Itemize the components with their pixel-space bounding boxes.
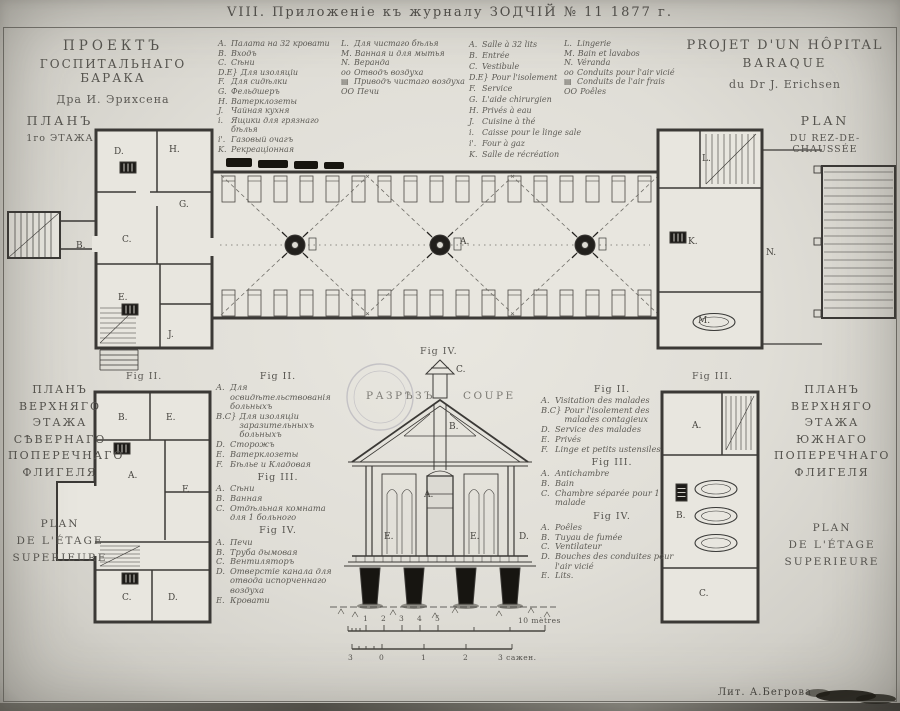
legend-row: i'. Four à gaz	[469, 138, 587, 149]
legend-text: Pour l'isolement	[492, 72, 558, 83]
legend-row: G. Фельдшеръ	[218, 87, 342, 97]
legend-key: OO	[564, 87, 577, 97]
legend-row: E. Privés	[541, 435, 683, 444]
legend-row: i. Ящики для грязнаго бѣлья	[218, 116, 342, 135]
legend-key: ▤	[341, 77, 351, 87]
legend-row: K. Salle de récréation	[469, 149, 587, 160]
side-subtitle-line: DE L'ÉTAGE	[8, 533, 112, 550]
legend-row: A. Для освидѣтельствованія больныхъ	[216, 383, 340, 411]
legend-row: D.E} Для изоляціи	[218, 68, 342, 78]
legend-row: J. Чайная кухня	[218, 106, 342, 116]
legend-key: B.C}	[216, 412, 236, 440]
side-title-line: ПЛАНЪ	[774, 382, 890, 399]
legend-text: Conduits de l'air frais	[577, 77, 665, 87]
legend-text: Сторожъ	[230, 440, 274, 449]
legend-key: F.	[541, 445, 552, 454]
legend-row: E. Lits.	[541, 571, 683, 580]
legend-key: i.	[218, 116, 228, 135]
legend-row: A. Poêles	[541, 523, 683, 532]
legend-text: Бѣлье и Кладовая	[230, 460, 311, 469]
legend-key: D.	[216, 567, 227, 595]
side-title-line: ФЛИГЕЛЯ	[8, 465, 112, 482]
legend-row: OO Poêles	[564, 87, 692, 97]
plan-label-fr-line1: PLAN	[760, 113, 890, 128]
legend-text: Caisse pour le linge sale	[482, 127, 581, 138]
side-title-left: ПЛАНЪВЕРХНЯГОЭТАЖАСѢВЕРНАГОПОПЕРЕЧНАГОФЛ…	[8, 382, 112, 481]
legend-key: H.	[218, 97, 228, 107]
fig2-legend-title: Fig II.	[216, 372, 340, 381]
legend-row: M. Bain et lavabos	[564, 49, 692, 59]
legend-text: Vestibule	[482, 61, 519, 72]
legend-key: oo	[341, 68, 351, 78]
plan-label-ru: ПЛАНЪ 1го ЭТАЖА	[14, 113, 106, 144]
caption-fig4: Fig IV.	[420, 346, 458, 357]
legend-row: B. Входъ	[218, 49, 342, 59]
legend-text: Cuisine à thé	[482, 116, 535, 127]
legend-text: Salle de récréation	[482, 149, 559, 160]
legend-text: Entrée	[482, 50, 510, 61]
plan-label-fr-line2: DU REZ-DE-CHAUSSÉE	[760, 133, 890, 155]
side-title-line: ЭТАЖА	[8, 415, 112, 432]
side-subtitle-line: DE L'ÉTAGE	[774, 537, 890, 554]
side-title-line: ПОПЕРЕЧНАГО	[774, 448, 890, 465]
legend-text: Ящики для грязнаго бѣлья	[231, 116, 342, 135]
legend-text: Палата на 32 кровати	[231, 39, 330, 49]
legend-key: E.	[216, 450, 227, 459]
legend-key: G.	[218, 87, 228, 97]
lithograph-plate: VIII. Приложеніе къ журналу ЗОДЧІЙ № 11 …	[0, 0, 900, 711]
fig-legend-ru: Fig II. A. Для освидѣтельствованія больн…	[216, 372, 340, 605]
legend-text: Приводъ чистаго воздуха	[354, 77, 465, 87]
legend-key: A.	[216, 538, 227, 547]
legend-key: C.	[216, 504, 227, 523]
legend-row: E. Ватерклозеты	[216, 450, 340, 459]
legend-key: G.	[469, 94, 479, 105]
legend-row: i. Caisse pour le linge sale	[469, 127, 587, 138]
fig3-legend-title: Fig III.	[216, 473, 340, 482]
legend-text: Кровати	[230, 596, 270, 605]
legend-key: B.	[218, 49, 228, 59]
legend-text: Ванная	[230, 494, 262, 503]
side-title-line: ПЛАНЪ	[8, 382, 112, 399]
legend-text: Four à gaz	[482, 138, 525, 149]
lithographer-credit: Лит. А.Бегрова	[718, 687, 812, 698]
legend-key: A.	[218, 39, 228, 49]
section-label-ru: РАЗРѢЗЪ	[366, 390, 435, 402]
legend-key: C.	[541, 489, 552, 508]
fig3-legend-items: A. Сѣни B. Ванная C. Отдѣльная комната д…	[216, 484, 340, 522]
legend-key: OO	[341, 87, 354, 97]
legend-text: Печи	[230, 538, 253, 547]
legend-text: Для сидѣлки	[231, 77, 287, 87]
fig4-legend-items-fr: A. Poêles B. Tuyau de fumée C. Ventilate…	[541, 523, 683, 581]
legend-text: Входъ	[231, 49, 257, 59]
title-block-ru: ПРОЕКТЪ ГОСПИТАЛЬНАГО БАРАКА Дра И. Эрих…	[12, 38, 214, 106]
side-title-right: ПЛАНЪВЕРХНЯГОЭТАЖАЮЖНАГОПОПЕРЕЧНАГОФЛИГЕ…	[774, 382, 890, 481]
side-title-line: ЭТАЖА	[774, 415, 890, 432]
legend-row: J. Cuisine à thé	[469, 116, 587, 127]
legend-text: Bouches des conduites pour l'air vicié	[555, 552, 683, 571]
legend-text: Salle à 32 lits	[482, 39, 537, 50]
legend-text: Conduits pour l'air vicié	[577, 68, 675, 78]
legend-key: D.	[541, 552, 552, 571]
side-title-line: ФЛИГЕЛЯ	[774, 465, 890, 482]
plan-label-ru-line1: ПЛАНЪ	[14, 113, 106, 128]
legend-fr-col2: L. Lingerie M. Bain et lavabos N. Vérand…	[564, 39, 692, 97]
legend-key: J.	[469, 116, 479, 127]
legend-ru-col1: A. Палата на 32 кровати B. Входъ C. Сѣни…	[218, 39, 342, 154]
legend-text: Linge et petits ustensiles	[555, 445, 661, 454]
legend-text: L'aide chirurgien	[482, 94, 552, 105]
legend-text: Отверстіе канала для отвода испорченнаго…	[230, 567, 340, 595]
legend-key: K.	[218, 145, 228, 155]
legend-key: B.	[469, 50, 479, 61]
fig3-legend-title-fr: Fig III.	[541, 458, 683, 467]
side-title-line: ЮЖНАГО	[774, 432, 890, 449]
legend-row: ▤ Conduits de l'air frais	[564, 77, 692, 87]
legend-text: Pour l'isolement des malades contagieux	[564, 406, 683, 425]
fig3-legend-items-fr: A. Antichambre B. Bain C. Chambre séparé…	[541, 469, 683, 507]
legend-key: i'.	[218, 135, 228, 145]
legend-row: N. Веранда	[341, 58, 467, 68]
legend-row: H. Ватерклозеты	[218, 97, 342, 107]
legend-row: D. Сторожъ	[216, 440, 340, 449]
legend-row: ▤ Приводъ чистаго воздуха	[341, 77, 467, 87]
fig2-legend-items: A. Для освидѣтельствованія больныхъ B.C}…	[216, 383, 340, 469]
legend-key: A.	[216, 383, 227, 411]
legend-key: F.	[218, 77, 228, 87]
legend-key: D.E}	[469, 72, 489, 83]
legend-key: N.	[564, 58, 574, 68]
legend-key: E.	[216, 596, 227, 605]
legend-row: C. Chambre séparée pour 1 malade	[541, 489, 683, 508]
legend-key: A.	[541, 523, 552, 532]
legend-key: C.	[218, 58, 228, 68]
plan-label-ru-line2: 1го ЭТАЖА	[14, 133, 106, 144]
side-subtitle-line: PLAN	[8, 516, 112, 533]
legend-text: Отдѣльная комната для 1 больного	[230, 504, 340, 523]
legend-text: Рекреаціонная	[231, 145, 294, 155]
legend-text: Фельдшеръ	[231, 87, 280, 97]
legend-row: D. Bouches des conduites pour l'air vici…	[541, 552, 683, 571]
legend-key: J.	[218, 106, 228, 116]
scan-edge-shadow	[0, 703, 900, 711]
legend-text: Privés	[555, 435, 581, 444]
fig-legend-fr: Fig II. A. Visitation des malades B.C} P…	[541, 385, 683, 581]
legend-key: L.	[341, 39, 351, 49]
legend-key: K.	[469, 149, 479, 160]
legend-text: Для освидѣтельствованія больныхъ	[230, 383, 340, 411]
legend-key: D.E}	[218, 68, 238, 78]
legend-text: Для изоляціи заразительныхъ больныхъ	[239, 412, 340, 440]
title-ru-author: Дра И. Эрихсена	[12, 93, 214, 106]
legend-row: A. Палата на 32 кровати	[218, 39, 342, 49]
legend-row: F. Для сидѣлки	[218, 77, 342, 87]
legend-row: B.C} Pour l'isolement des malades contag…	[541, 406, 683, 425]
fig4-legend-items: A. Печи B. Труба дымовая C. Вентиляторъ …	[216, 538, 340, 605]
legend-key: B.C}	[541, 406, 561, 425]
section-label-fr: COUPE	[463, 390, 516, 402]
legend-row: D. Отверстіе канала для отвода испорченн…	[216, 567, 340, 595]
legend-row: L. Lingerie	[564, 39, 692, 49]
legend-text: Газовый очагъ	[231, 135, 293, 145]
legend-text: Сѣни	[231, 58, 255, 68]
side-subtitle-left: PLANDE L'ÉTAGESUPERIEURE	[8, 516, 112, 567]
title-fr-author: du Dr J. Erichsen	[680, 78, 890, 91]
legend-key: F.	[216, 460, 227, 469]
legend-key: i'.	[469, 138, 479, 149]
legend-key: N.	[341, 58, 351, 68]
side-title-line: ВЕРХНЯГО	[8, 399, 112, 416]
title-fr-line1: PROJET D'UN HÔPITAL	[680, 38, 890, 53]
side-title-line: ВЕРХНЯГО	[774, 399, 890, 416]
legend-key: ▤	[564, 77, 574, 87]
legend-row: N. Véranda	[564, 58, 692, 68]
legend-text: Веранда	[354, 58, 390, 68]
title-block-fr: PROJET D'UN HÔPITAL BARAQUE du Dr J. Eri…	[680, 38, 890, 91]
caption-fig3: Fig III.	[692, 371, 733, 382]
legend-text: Bain et lavabos	[578, 49, 640, 59]
legend-row: OO Печи	[341, 87, 467, 97]
legend-text: Для чистаго бѣлья	[354, 39, 439, 49]
legend-row: F. Linge et petits ustensiles	[541, 445, 683, 454]
legend-text: Service	[482, 83, 512, 94]
legend-text: Chambre séparée pour 1 malade	[555, 489, 683, 508]
legend-row: C. Сѣни	[218, 58, 342, 68]
legend-text: Печи	[357, 87, 379, 97]
title-ru-line1: ПРОЕКТЪ	[12, 38, 214, 54]
legend-row: C. Отдѣльная комната для 1 больного	[216, 504, 340, 523]
title-fr-line2: BARAQUE	[680, 56, 890, 70]
legend-key: H.	[469, 105, 479, 116]
legend-row: oo Отводъ воздуха	[341, 68, 467, 78]
fig2-legend-title-fr: Fig II.	[541, 385, 683, 394]
fig4-legend-title-fr: Fig IV.	[541, 512, 683, 521]
legend-key: oo	[564, 68, 574, 78]
legend-text: Ватерклозеты	[231, 97, 297, 107]
side-title-line: СѢВЕРНАГО	[8, 432, 112, 449]
legend-text: Véranda	[577, 58, 610, 68]
fig4-legend-title: Fig IV.	[216, 526, 340, 535]
legend-row: B.C} Для изоляціи заразительныхъ больных…	[216, 412, 340, 440]
legend-key: D.	[216, 440, 227, 449]
legend-key: i.	[469, 127, 479, 138]
legend-row: L. Для чистаго бѣлья	[341, 39, 467, 49]
fig2-legend-items-fr: A. Visitation des malades B.C} Pour l'is…	[541, 396, 683, 454]
legend-key: L.	[564, 39, 574, 49]
side-title-line: ПОПЕРЕЧНАГО	[8, 448, 112, 465]
plan-label-fr: PLAN DU REZ-DE-CHAUSSÉE	[760, 113, 890, 155]
legend-row: E. Кровати	[216, 596, 340, 605]
caption-fig2: Fig II.	[126, 371, 162, 382]
legend-text: Poêles	[555, 523, 582, 532]
legend-row: oo Conduits pour l'air vicié	[564, 68, 692, 78]
legend-text: Для изоляціи	[241, 68, 298, 78]
legend-row: F. Бѣлье и Кладовая	[216, 460, 340, 469]
legend-text: Ватерклозеты	[230, 450, 298, 459]
legend-text: Чайная кухня	[231, 106, 289, 116]
side-subtitle-line: SUPERIEURE	[8, 550, 112, 567]
legend-text: Lits.	[555, 571, 573, 580]
legend-text: Poêles	[580, 87, 606, 97]
legend-text: Privés à eau	[482, 105, 532, 116]
legend-key: A.	[469, 39, 479, 50]
legend-row: H. Privés à eau	[469, 105, 587, 116]
legend-ru-col2: L. Для чистаго бѣлья M. Ванная и для мыт…	[341, 39, 467, 97]
legend-text: Отводъ воздуха	[354, 68, 423, 78]
legend-text: Lingerie	[577, 39, 611, 49]
side-subtitle-line: PLAN	[774, 520, 890, 537]
legend-row: A. Печи	[216, 538, 340, 547]
plate-title: VIII. Приложеніе къ журналу ЗОДЧІЙ № 11 …	[0, 5, 900, 20]
legend-row: i'. Газовый очагъ	[218, 135, 342, 145]
legend-key: B.	[216, 494, 227, 503]
legend-key: E.	[541, 571, 552, 580]
legend-row: M. Ванная и для мытья	[341, 49, 467, 59]
legend-row: B. Ванная	[216, 494, 340, 503]
side-subtitle-line: SUPERIEURE	[774, 554, 890, 571]
legend-key: E.	[541, 435, 552, 444]
legend-text: Ванная и для мытья	[355, 49, 445, 59]
legend-key: M.	[341, 49, 352, 59]
legend-row: K. Рекреаціонная	[218, 145, 342, 155]
legend-key: C.	[469, 61, 479, 72]
side-subtitle-right: PLANDE L'ÉTAGESUPERIEURE	[774, 520, 890, 571]
title-ru-line2: ГОСПИТАЛЬНАГО БАРАКА	[12, 57, 214, 85]
legend-key: M.	[564, 49, 575, 59]
legend-key: F.	[469, 83, 479, 94]
